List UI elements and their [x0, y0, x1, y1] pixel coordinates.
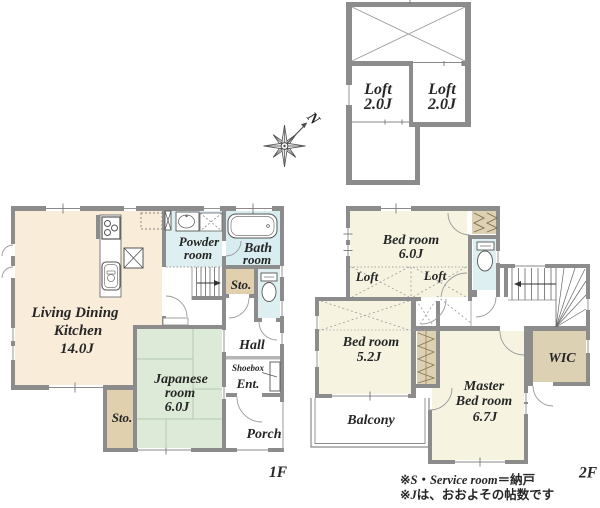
svg-text:Bed room: Bed room — [342, 335, 400, 350]
svg-text:Porch: Porch — [247, 427, 282, 442]
svg-text:Japanese: Japanese — [153, 372, 208, 387]
svg-text:Shoebox: Shoebox — [232, 363, 265, 373]
svg-text:Balcony: Balcony — [346, 413, 395, 428]
svg-text:Ent.: Ent. — [236, 376, 260, 391]
svg-text:Bed room: Bed room — [455, 394, 513, 409]
svg-text:Loft: Loft — [355, 269, 379, 284]
svg-text:2.0J: 2.0J — [363, 96, 393, 113]
svg-text:※S・Service room＝納戸: ※S・Service room＝納戸 — [400, 472, 535, 487]
svg-text:2.0J: 2.0J — [427, 96, 457, 113]
svg-text:room: room — [184, 247, 212, 262]
svg-text:※Jは、おおよその帖数です: ※Jは、おおよその帖数です — [400, 487, 554, 502]
svg-text:WIC: WIC — [548, 351, 576, 366]
svg-text:Kitchen: Kitchen — [53, 323, 102, 339]
svg-text:14.0J: 14.0J — [60, 341, 94, 357]
svg-text:Sto.: Sto. — [112, 410, 133, 425]
svg-text:6.0J: 6.0J — [165, 400, 191, 415]
svg-text:6.7J: 6.7J — [473, 410, 499, 425]
svg-text:room: room — [243, 252, 271, 267]
svg-text:6.0J: 6.0J — [399, 247, 425, 262]
svg-text:Loft: Loft — [423, 268, 447, 283]
svg-text:Hall: Hall — [238, 338, 265, 353]
svg-text:2F: 2F — [578, 465, 598, 482]
svg-text:Bed room: Bed room — [382, 233, 440, 248]
svg-text:Master: Master — [463, 379, 505, 394]
svg-text:Sto.: Sto. — [231, 277, 252, 292]
svg-text:1F: 1F — [269, 464, 288, 481]
svg-text:5.2J: 5.2J — [357, 350, 383, 365]
svg-text:room: room — [165, 386, 195, 401]
svg-text:Living Dining: Living Dining — [30, 305, 119, 321]
